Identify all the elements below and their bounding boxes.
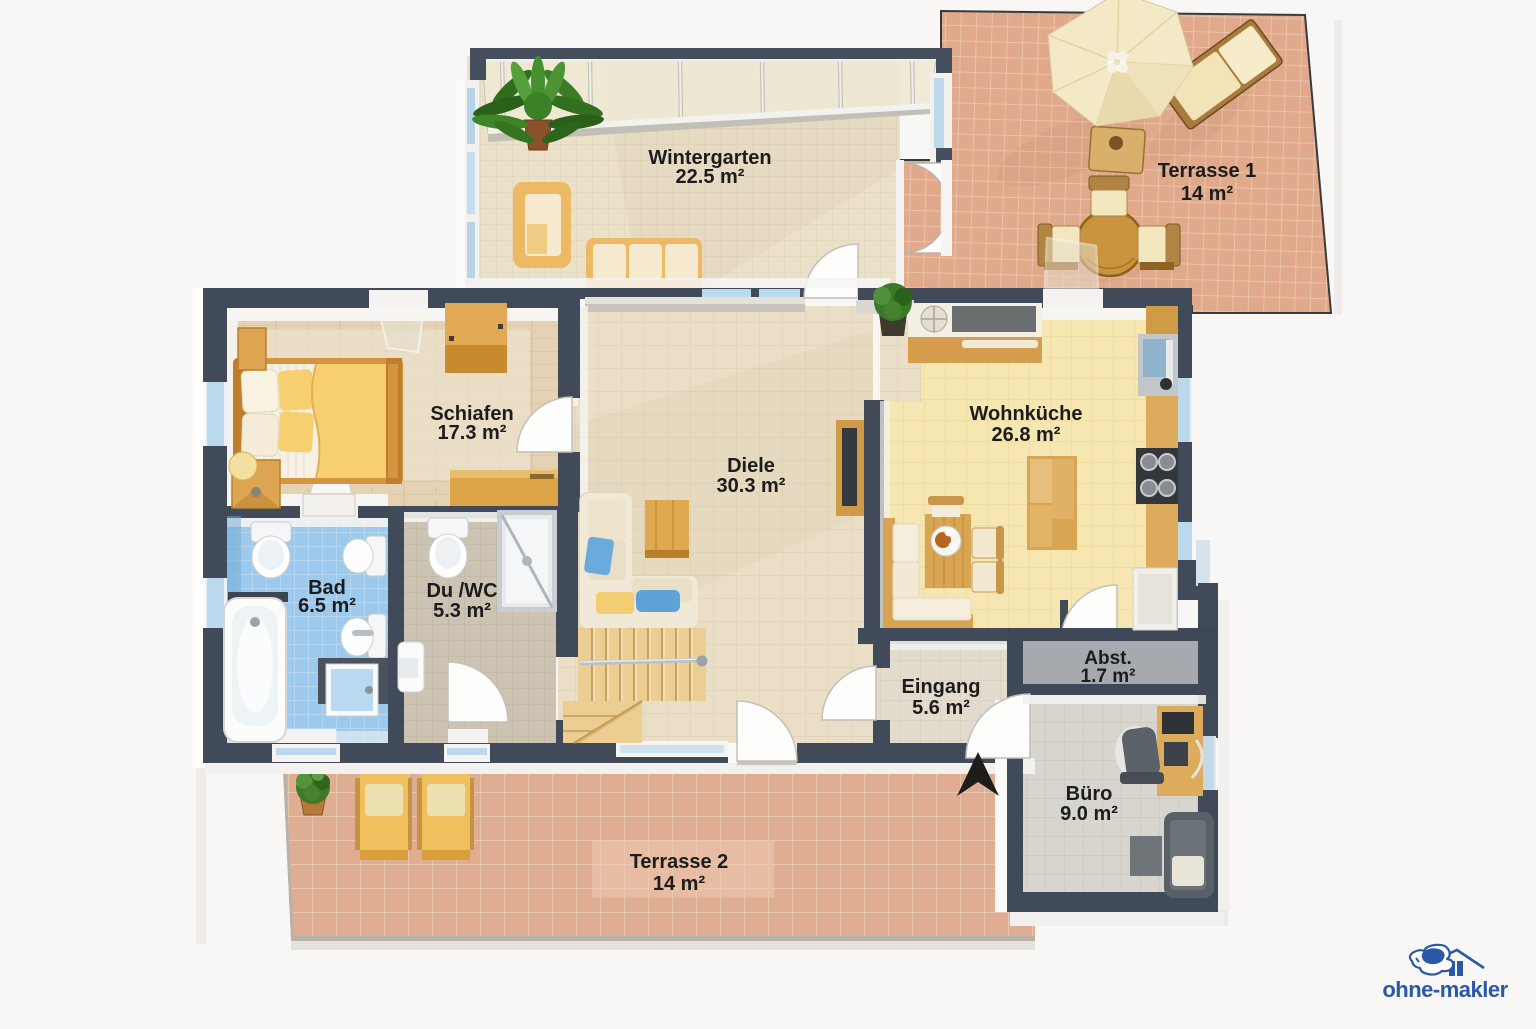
svg-text:9.0 m²: 9.0 m² <box>1060 803 1118 825</box>
svg-text:ohne-makler: ohne-makler <box>1382 977 1508 1002</box>
svg-text:5.3 m²: 5.3 m² <box>433 600 491 622</box>
svg-text:Terrasse 1: Terrasse 1 <box>1158 160 1257 182</box>
svg-text:Du /WC: Du /WC <box>426 580 497 602</box>
svg-text:30.3 m²: 30.3 m² <box>717 475 786 497</box>
svg-text:Büro: Büro <box>1066 783 1113 805</box>
svg-text:6.5 m²: 6.5 m² <box>298 595 356 617</box>
svg-text:5.6 m²: 5.6 m² <box>912 697 970 719</box>
svg-text:22.5 m²: 22.5 m² <box>676 166 745 188</box>
svg-text:Wohnküche: Wohnküche <box>970 403 1083 425</box>
svg-text:Terrasse 2: Terrasse 2 <box>630 851 729 873</box>
svg-text:Diele: Diele <box>727 455 775 477</box>
svg-text:1.7 m²: 1.7 m² <box>1081 666 1136 687</box>
svg-text:14 m²: 14 m² <box>653 873 706 895</box>
svg-text:Eingang: Eingang <box>902 676 981 698</box>
svg-text:17.3 m²: 17.3 m² <box>438 422 507 444</box>
svg-text:14 m²: 14 m² <box>1181 183 1234 205</box>
svg-text:26.8 m²: 26.8 m² <box>992 424 1061 446</box>
